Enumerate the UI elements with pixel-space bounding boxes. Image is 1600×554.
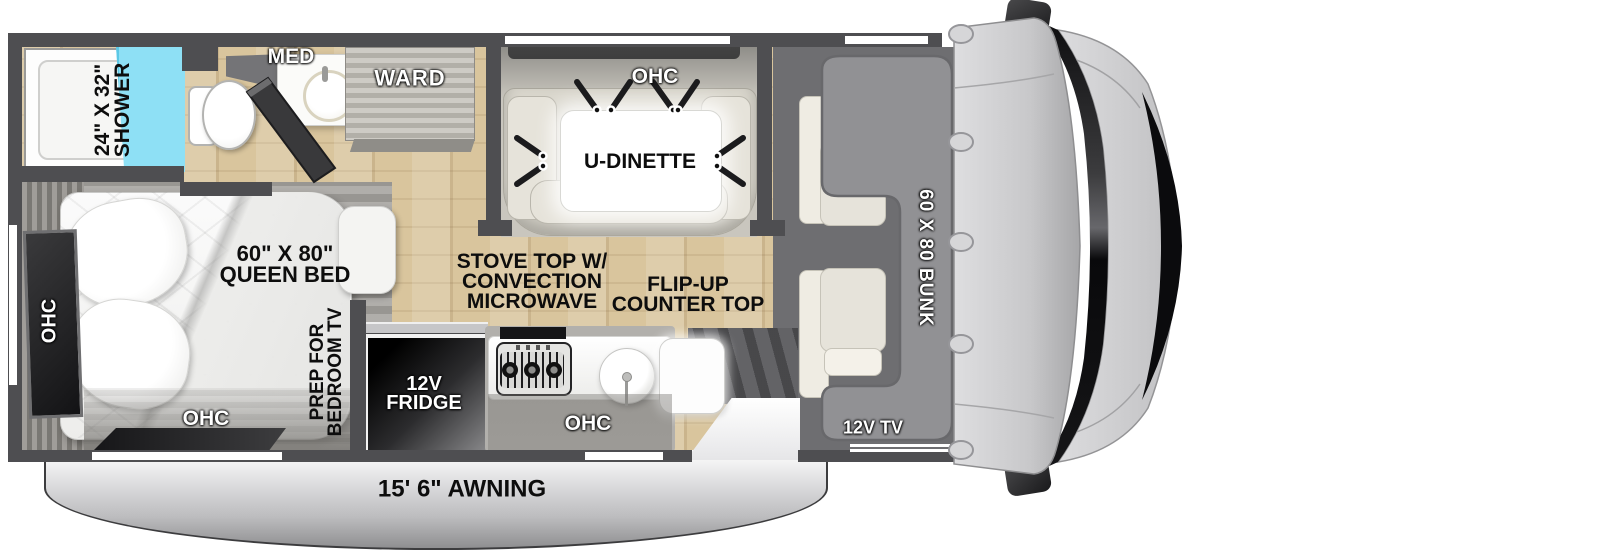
window-top-cab xyxy=(845,36,928,44)
prep-tv-label: PREP FOR BEDROOM TV xyxy=(309,308,345,437)
window-bottom-bedroom xyxy=(92,452,282,460)
bunk-rail-line-1 xyxy=(850,444,950,447)
wall-dinette-right xyxy=(757,33,772,235)
bunk-rail-line-2 xyxy=(850,449,950,452)
stove-burner-3 xyxy=(546,362,562,378)
window-left-bedroom xyxy=(9,225,17,385)
fridge-label: 12V FRIDGE xyxy=(386,375,462,413)
window-top-dinette xyxy=(505,36,730,44)
flip-line1: FLIP-UP xyxy=(612,275,764,295)
kitchen-ohc-label: OHC xyxy=(565,414,612,434)
seatbelt-icons xyxy=(505,70,755,195)
flip-up-label: FLIP-UP COUNTER TOP xyxy=(612,275,764,315)
stove-burner-2 xyxy=(524,362,540,378)
wall-kitchen-left xyxy=(350,300,366,450)
cabover-bunk xyxy=(815,50,960,450)
stove-top-label: STOVE TOP W/ CONVECTION MICROWAVE xyxy=(457,252,608,312)
fridge-line2: FRIDGE xyxy=(386,394,462,413)
shower-size-text: 24" X 32" xyxy=(93,63,113,158)
prep-tv-line2: BEDROOM TV xyxy=(327,308,345,437)
bedroom-mat xyxy=(92,428,292,452)
bed-size-label: 60" X 80" QUEEN BED xyxy=(220,244,351,286)
wall-bed-top xyxy=(180,182,272,196)
cab-tv-label: 12V TV xyxy=(843,419,903,436)
bedroom-ohc-bottom-label: OHC xyxy=(183,409,230,429)
wall-shower-stub xyxy=(182,33,218,71)
flip-line2: COUNTER TOP xyxy=(612,295,764,315)
bathroom-door xyxy=(238,72,342,188)
awning-label: 15' 6" AWNING xyxy=(378,479,546,502)
bedroom-ohc-side-label: OHC xyxy=(41,299,60,343)
dinette-ohc-label: OHC xyxy=(632,67,679,87)
wardrobe-shadow xyxy=(350,139,475,152)
bed-name-text: QUEEN BED xyxy=(220,265,351,286)
wall-top xyxy=(8,33,942,47)
wardrobe xyxy=(345,47,475,141)
bunk-label: 60 X 80 BUNK xyxy=(916,189,934,327)
wall-dinette-left-stub xyxy=(478,220,512,236)
window-bottom-kitchen xyxy=(585,452,663,460)
stove-line2: CONVECTION xyxy=(457,272,608,292)
kitchen-faucet-base xyxy=(622,372,632,382)
shower-name-text: SHOWER xyxy=(113,63,133,158)
wall-dinette-right-stub xyxy=(750,220,785,236)
rv-floorplan: 24" X 32" SHOWER MED WARD OHC U-DINETTE … xyxy=(0,0,1600,554)
wall-dinette-left xyxy=(486,33,501,235)
shower-label: 24" X 32" SHOWER xyxy=(93,63,133,158)
stove-line1: STOVE TOP W/ xyxy=(457,252,608,272)
med-label: MED xyxy=(268,47,315,67)
dinette-table-label: U-DINETTE xyxy=(584,152,696,172)
stove-knobs xyxy=(516,345,550,350)
stove-burner-1 xyxy=(502,362,518,378)
kitchen-backsplash xyxy=(500,327,566,339)
awning xyxy=(44,458,828,550)
bunk-hinge-dots xyxy=(940,20,990,470)
wall-shower-bottom xyxy=(8,166,184,182)
stove-line3: MICROWAVE xyxy=(457,292,608,312)
ward-label: WARD xyxy=(374,69,445,90)
